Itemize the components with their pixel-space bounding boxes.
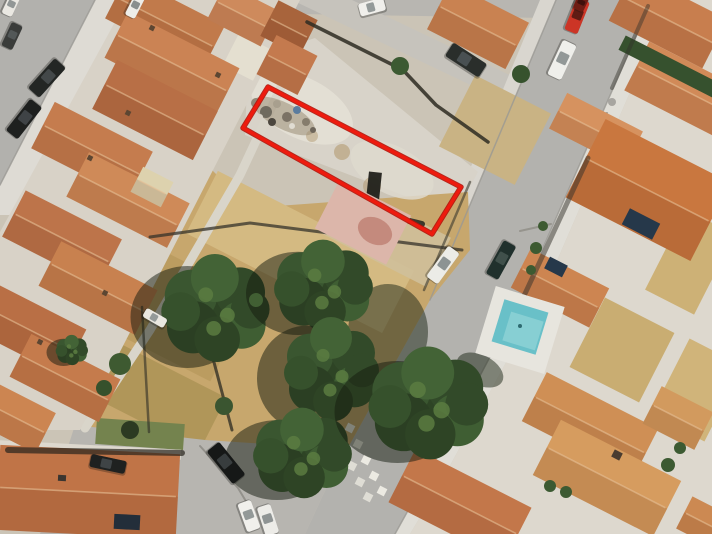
bush bbox=[674, 442, 686, 454]
bush bbox=[96, 380, 112, 396]
bush bbox=[249, 293, 263, 307]
debris bbox=[282, 112, 292, 122]
lot-dirt-spot bbox=[334, 144, 350, 160]
bottomleft-house-shadow bbox=[8, 450, 182, 453]
debris bbox=[293, 106, 301, 114]
bush bbox=[538, 221, 548, 231]
debris bbox=[310, 127, 316, 133]
solar-panel bbox=[114, 514, 141, 530]
bush bbox=[391, 57, 409, 75]
debris bbox=[268, 118, 276, 126]
bush bbox=[544, 480, 556, 492]
debris bbox=[289, 123, 295, 129]
manhole bbox=[608, 98, 616, 106]
bush bbox=[215, 397, 233, 415]
debris bbox=[302, 118, 310, 126]
debris bbox=[273, 100, 281, 108]
aerial-photo bbox=[0, 0, 712, 534]
bush bbox=[661, 458, 675, 472]
bush bbox=[560, 486, 572, 498]
bush bbox=[512, 65, 530, 83]
screenshot-root bbox=[0, 0, 712, 534]
pool-drain bbox=[518, 324, 522, 328]
chimney bbox=[58, 475, 66, 481]
debris bbox=[257, 114, 263, 120]
bush bbox=[526, 265, 536, 275]
bush bbox=[530, 242, 542, 254]
bush-dark bbox=[121, 421, 139, 439]
bush bbox=[109, 353, 131, 375]
